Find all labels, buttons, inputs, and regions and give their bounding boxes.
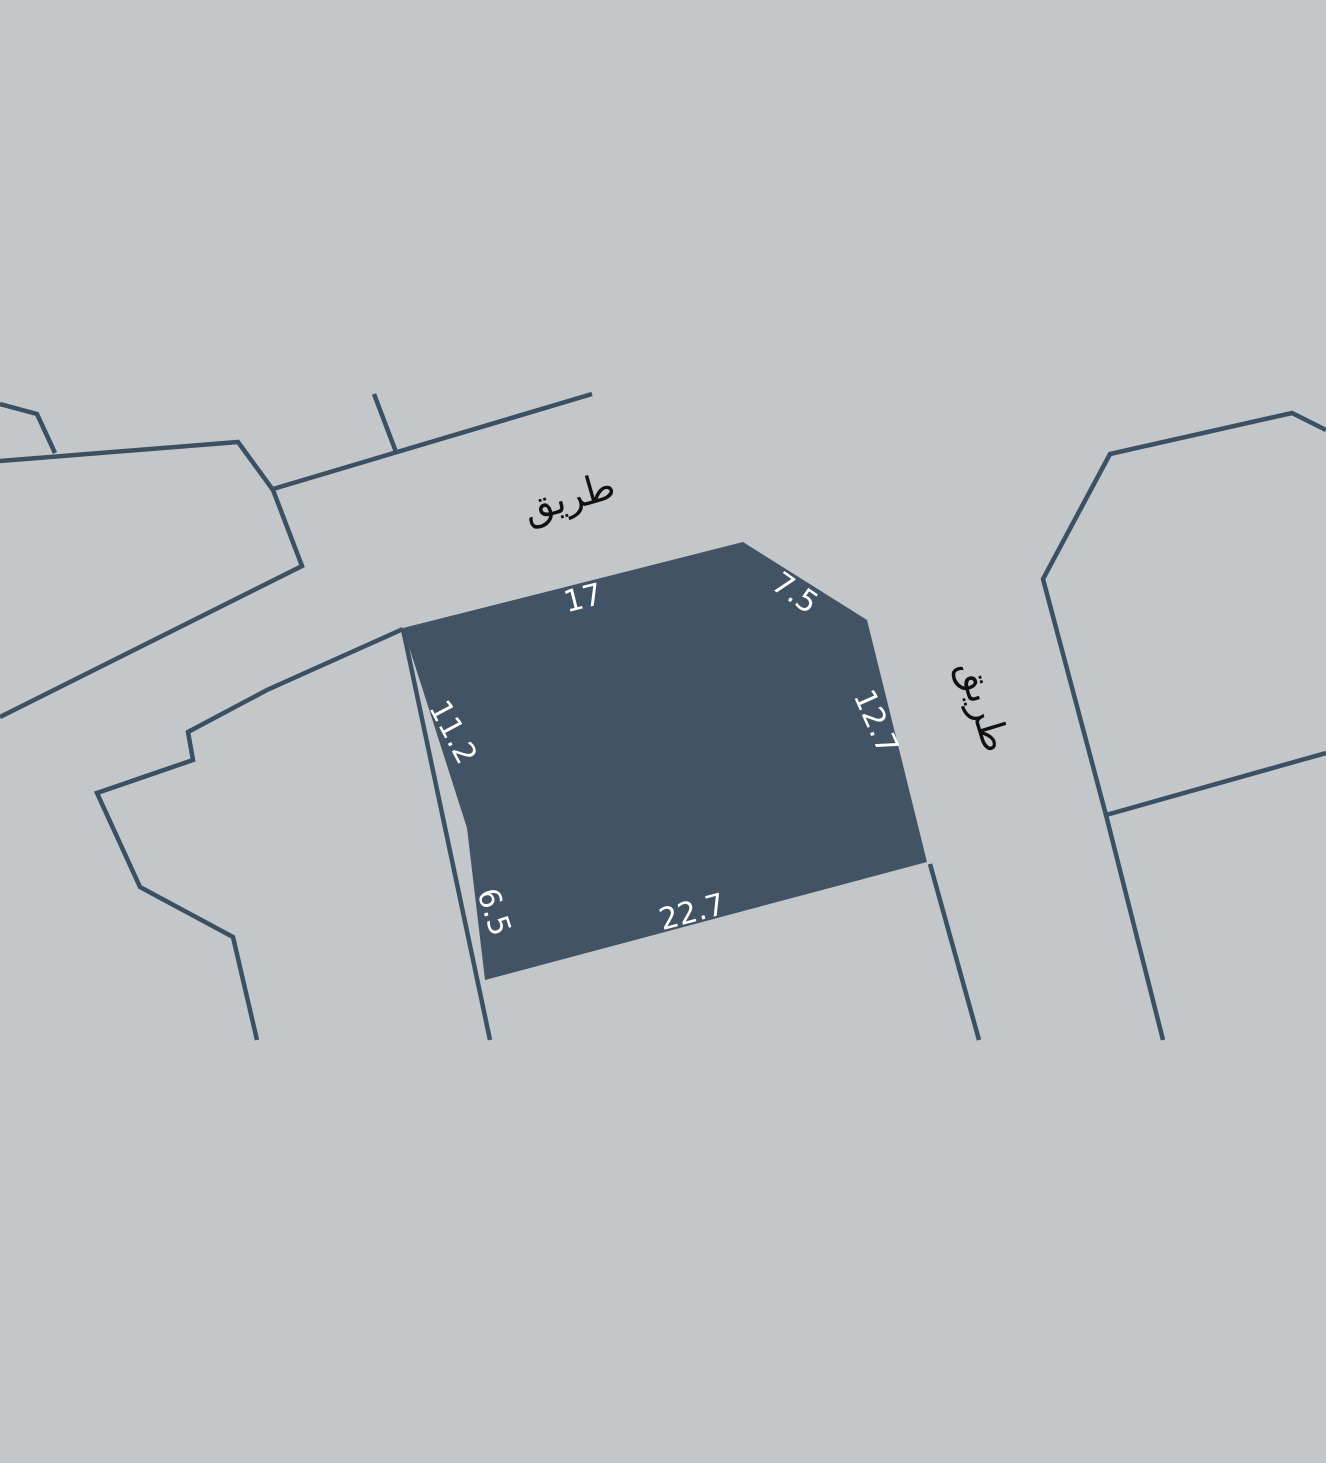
cadastral-map: 17 7.5 12.7 22.7 6.5 11.2 طريق طريق [0,0,1326,1463]
